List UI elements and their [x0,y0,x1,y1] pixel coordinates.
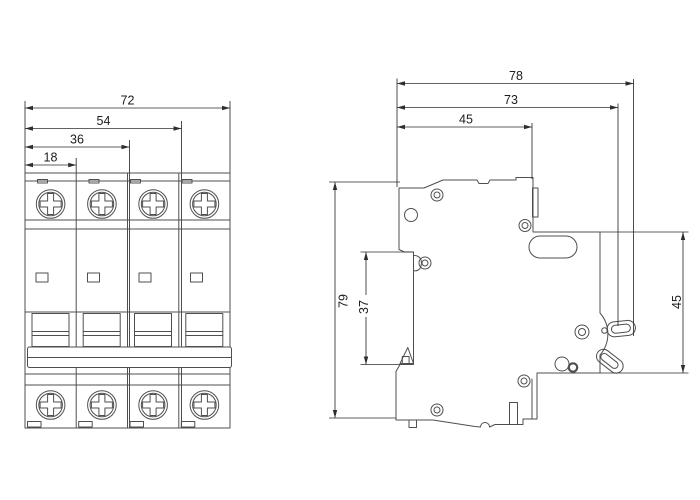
dim-text-73: 73 [504,93,518,107]
drawing-canvas: 72 54 36 18 [0,0,700,500]
dim-text-78: 78 [509,69,523,83]
dim-text-54: 54 [97,114,111,128]
dim-text-79: 79 [337,294,351,308]
dim-text-18: 18 [44,151,58,165]
dim-text-36: 36 [70,133,84,147]
dim-text-37: 37 [357,300,371,314]
background [0,0,700,500]
dim-text-45-right: 45 [670,295,684,309]
dim-text-45-top: 45 [459,113,473,127]
dim-text-72: 72 [121,94,135,108]
handle-tie-bar [28,347,232,368]
dimension-drawing: 72 54 36 18 [0,0,700,500]
